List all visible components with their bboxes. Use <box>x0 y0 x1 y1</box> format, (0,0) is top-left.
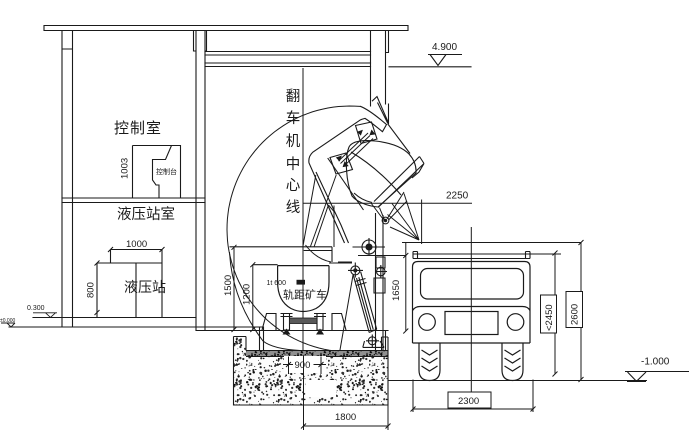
svg-text:800: 800 <box>86 282 97 298</box>
svg-text:-1.000: -1.000 <box>641 357 670 368</box>
svg-text:1500: 1500 <box>223 275 234 296</box>
svg-text:轨距矿车: 轨距矿车 <box>283 288 327 302</box>
svg-text:1003: 1003 <box>120 158 131 179</box>
svg-text:0.300: 0.300 <box>27 305 45 312</box>
svg-text:4.900: 4.900 <box>432 42 457 53</box>
svg-text:1200: 1200 <box>242 284 253 305</box>
svg-text:线: 线 <box>286 199 301 216</box>
svg-text:中: 中 <box>286 156 301 173</box>
svg-text:心: 心 <box>286 177 301 194</box>
svg-text:2300: 2300 <box>458 396 479 407</box>
svg-text:控制台: 控制台 <box>156 167 177 176</box>
svg-text:车: 车 <box>286 110 301 127</box>
svg-text:1650: 1650 <box>391 280 402 301</box>
svg-text:2600: 2600 <box>570 304 581 325</box>
svg-text:机: 机 <box>286 133 301 150</box>
svg-text:控制室: 控制室 <box>114 120 162 137</box>
svg-text:1000: 1000 <box>126 239 147 250</box>
svg-text:900: 900 <box>295 360 311 371</box>
svg-text:<2450: <2450 <box>544 304 555 331</box>
svg-text:翻: 翻 <box>286 88 301 105</box>
svg-text:2250: 2250 <box>446 191 469 202</box>
svg-text:±0.000: ±0.000 <box>0 318 15 324</box>
svg-text:1t 600: 1t 600 <box>267 280 287 287</box>
svg-text:液压站室: 液压站室 <box>117 206 175 223</box>
svg-text:液压站: 液压站 <box>124 279 166 295</box>
svg-text:1800: 1800 <box>335 412 356 423</box>
